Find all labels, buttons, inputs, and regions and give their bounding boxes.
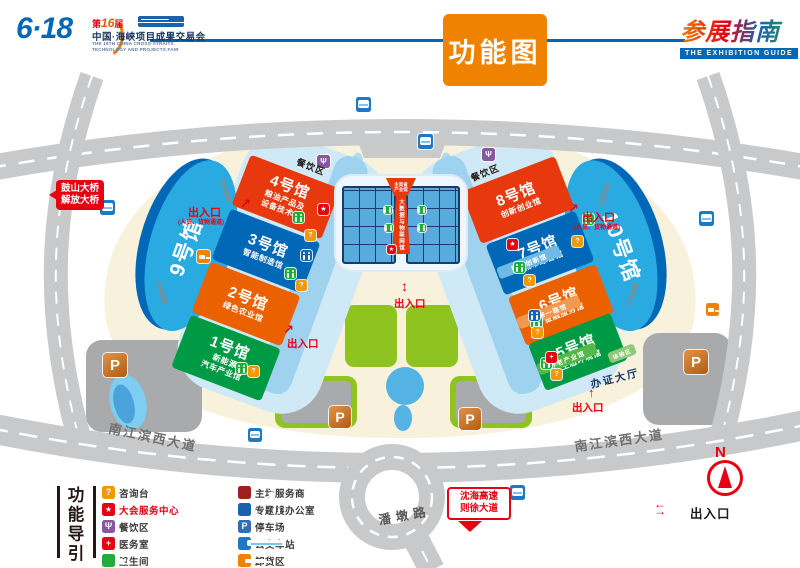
entrance-arrow-icon: ↗ [568, 201, 579, 217]
parkmap-icon: P [684, 350, 708, 374]
truck-icon [706, 303, 719, 316]
toilet-icon [293, 212, 304, 223]
service-icon: ★ [318, 204, 329, 215]
edition-label: 第16届 [92, 16, 123, 30]
legend-bar-left [57, 486, 60, 558]
toilet-icon [236, 363, 247, 374]
info-icon: ? [572, 236, 583, 247]
fair-name-en: THE 16TH CHINA CROSS-STRAITSTECHNOLOGY A… [92, 41, 179, 53]
entrance-right-inner: 出入口 [572, 400, 604, 415]
entrance-arrow-icon: ↕ [401, 278, 408, 294]
legend-item-medical: + 医务室 [102, 537, 149, 550]
bus-stop-icon [238, 537, 251, 550]
toilet-icon [385, 224, 393, 232]
exit-legend-label: 出入口 [690, 503, 731, 522]
dining-icon: Ψ [482, 148, 495, 161]
parkmap-icon: P [459, 408, 481, 430]
sign-down-arrow-icon [458, 521, 482, 532]
info-icon: ? [305, 230, 316, 241]
exhibition-function-map: 6·18 第16届 中国·海峡项目成果交易会 THE 16TH CHINA CR… [0, 0, 800, 568]
medical-icon: + [102, 537, 115, 550]
logo-badge-icon [138, 16, 184, 27]
bus-icon [418, 134, 433, 149]
compass-needle-icon [718, 466, 732, 488]
office-icon [529, 310, 540, 321]
bus-icon [510, 485, 525, 500]
medical-icon: + [546, 352, 557, 363]
map-base-layer [0, 0, 800, 568]
parking-icon: P [238, 520, 251, 533]
service-center-icon: ★ [102, 503, 115, 516]
central-conference-complex: 主宾省 产业馆 大数据与物联网馆 [336, 176, 466, 270]
toilet-icon [514, 262, 525, 273]
entrance-right-outer-sub: (人员、货物通道) [574, 222, 620, 231]
entrance-center: 出入口 [394, 296, 426, 311]
info-icon: ? [532, 327, 543, 338]
toilet-icon [418, 224, 426, 232]
expressway-direction-sign: 沈海高速 则徐大道 [447, 487, 511, 520]
office-icon [301, 250, 312, 261]
legend-item-bus: 公交车站 [238, 537, 295, 550]
exhibition-guide-logo: 参展指南 THE EXHIBITION GUIDE [680, 12, 800, 59]
legend-item-unloading: 卸货区 [238, 554, 285, 567]
info-icon: ? [102, 486, 115, 499]
legend-item-service-center: ★ 大会服务中心 [102, 503, 179, 516]
truck-icon [197, 250, 210, 263]
bus-icon [248, 428, 262, 442]
page-title: 功能图 [443, 14, 547, 86]
toilet-icon [285, 268, 296, 279]
bus-icon [699, 211, 714, 226]
entrance-left-outer-sub: (人员、货物通道) [178, 217, 224, 226]
bridge-direction-sign: 鼓山大桥 解放大桥 [56, 180, 104, 210]
legend-title: 功能导引 [62, 486, 86, 564]
info-icon: ? [524, 275, 535, 286]
legend-bar-right [93, 486, 96, 558]
legend-item-parking: P 停车场 [238, 520, 285, 533]
toilet-icon [102, 554, 115, 567]
parkmap-icon: P [329, 406, 351, 428]
toilet-icon [418, 206, 426, 214]
legend-item-office: 专题展办公室 [238, 503, 315, 516]
sign-left-arrow-icon [49, 190, 57, 200]
entrance-arrow-icon: ↑ [588, 385, 595, 400]
parkmap-icon: P [103, 353, 127, 377]
toilet-icon [384, 206, 392, 214]
guide-title-cn: 参展指南 [680, 12, 800, 47]
exit-arrows-icon: ←→ [654, 501, 666, 516]
complex-east-block [406, 186, 460, 264]
legend-item-info: ? 咨询台 [102, 486, 149, 499]
header-rule-right [547, 39, 685, 42]
logo-618-mark: 6·18 [16, 12, 72, 46]
compass-n-label: N [715, 444, 726, 461]
bus-icon [356, 97, 371, 112]
legend-item-host-service: 主场服务商 [238, 486, 305, 499]
office-icon [238, 503, 251, 516]
compass-icon [707, 460, 743, 496]
guide-title-en: THE EXHIBITION GUIDE [680, 48, 798, 59]
legend-item-toilet: 卫生间 [102, 554, 149, 567]
service-icon: ★ [387, 245, 396, 254]
service-icon: ★ [507, 239, 518, 250]
legend-item-dining: Ψ 餐饮区 [102, 520, 149, 533]
dining-icon: Ψ [102, 520, 115, 533]
info-icon: ? [551, 369, 562, 380]
entrance-left-inner: 出入口 [287, 336, 319, 351]
info-icon: ? [248, 366, 259, 377]
fair-logo: 6·18 第16届 中国·海峡项目成果交易会 THE 16TH CHINA CR… [16, 12, 236, 64]
info-icon: ? [296, 280, 307, 291]
host-service-icon [238, 486, 251, 499]
entrance-arrow-icon: ↗ [240, 196, 251, 212]
unloading-icon [238, 554, 251, 567]
